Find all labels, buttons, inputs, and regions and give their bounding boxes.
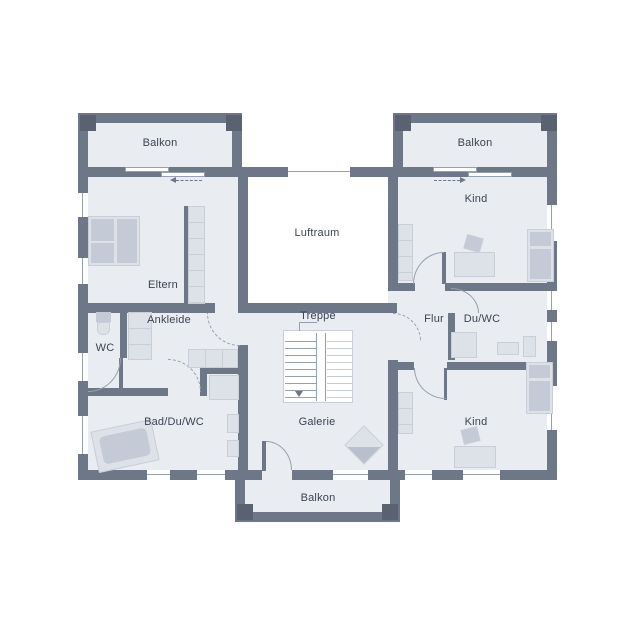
stair-down-arrow-icon <box>295 391 303 397</box>
mattress <box>117 219 137 263</box>
slide-arrow-line <box>434 180 460 181</box>
sliding-door-panel <box>161 172 205 177</box>
stair-steps-above <box>327 335 352 399</box>
toilet <box>97 322 110 335</box>
wardrobe-kind-bottom <box>398 392 413 434</box>
cabinet-row <box>188 349 238 368</box>
window <box>78 258 88 284</box>
wall-luftraum-left <box>238 177 248 303</box>
room-label-luftraum: Luftraum <box>294 227 339 239</box>
room-label-bad-du-wc: Bad/Du/WC <box>144 416 204 428</box>
pillow <box>530 232 551 246</box>
window <box>147 470 170 480</box>
wall-galerie-right <box>388 360 398 470</box>
sliding-door-panel <box>468 172 512 177</box>
room-label-kind-bottom: Kind <box>465 416 488 428</box>
pillow <box>529 365 550 378</box>
room-label-du-wc: Du/WC <box>464 313 500 325</box>
balcony-door-opening <box>262 470 292 482</box>
window <box>78 193 88 217</box>
toilet-tank <box>96 312 111 322</box>
window <box>463 470 500 480</box>
mattress <box>529 381 550 411</box>
balcony-corner-post <box>237 504 253 520</box>
pillow <box>91 219 114 241</box>
room-label-balkon-top-right: Balkon <box>458 137 493 149</box>
treppe-leader-line <box>299 322 317 323</box>
room-label-kind-top: Kind <box>465 193 488 205</box>
room-label-eltern: Eltern <box>148 279 178 291</box>
sink-duwc <box>497 342 519 355</box>
balcony-corner-post <box>541 115 557 131</box>
wall-kind-top-bottom-a <box>388 283 415 291</box>
room-label-galerie: Galerie <box>299 416 336 428</box>
mattress <box>530 249 551 279</box>
desk-kind-bottom <box>454 446 496 468</box>
window <box>197 470 225 480</box>
wardrobe-kind-top <box>398 224 413 281</box>
sink-bad <box>227 414 239 433</box>
staircase <box>283 330 353 403</box>
room-label-ankleide: Ankleide <box>147 314 191 326</box>
window <box>405 470 432 480</box>
window <box>78 416 88 454</box>
toilet-duwc <box>523 336 536 357</box>
window <box>547 291 557 310</box>
luftraum-void <box>248 177 388 303</box>
stair-handrail <box>316 333 326 401</box>
room-label-wc: WC <box>96 342 115 354</box>
shower-bad <box>209 375 239 400</box>
window <box>78 353 88 381</box>
wall-wc-right <box>120 313 127 358</box>
desk-kind-top <box>454 252 495 277</box>
balcony-corner-post <box>226 115 242 131</box>
balcony-corner-post <box>395 115 411 131</box>
shower-duwc <box>451 332 477 358</box>
room-label-balkon-bottom: Balkon <box>301 492 336 504</box>
balcony-corner-post <box>382 504 398 520</box>
room-label-balkon-top-left: Balkon <box>143 137 178 149</box>
window <box>547 322 557 341</box>
wardrobe-eltern <box>188 206 205 304</box>
wall-luftraum-right <box>388 177 398 283</box>
floor-plan: Balkon Balkon Eltern Luftraum Kind Ankle… <box>0 0 636 636</box>
treppe-leader-line <box>299 322 300 331</box>
slide-arrow-icon <box>460 177 466 183</box>
wall-galerie-left <box>238 345 248 470</box>
window <box>333 470 368 480</box>
pillow <box>91 243 114 263</box>
window <box>288 167 350 177</box>
wall-ankleide-jamb <box>200 367 207 396</box>
bathtub-basin <box>99 427 152 464</box>
toilet-bad <box>227 440 239 457</box>
room-label-flur: Flur <box>424 313 444 325</box>
balcony-corner-post <box>80 115 96 131</box>
slide-arrow-line <box>176 180 202 181</box>
room-label-treppe: Treppe <box>300 310 336 322</box>
stair-steps <box>285 335 316 399</box>
